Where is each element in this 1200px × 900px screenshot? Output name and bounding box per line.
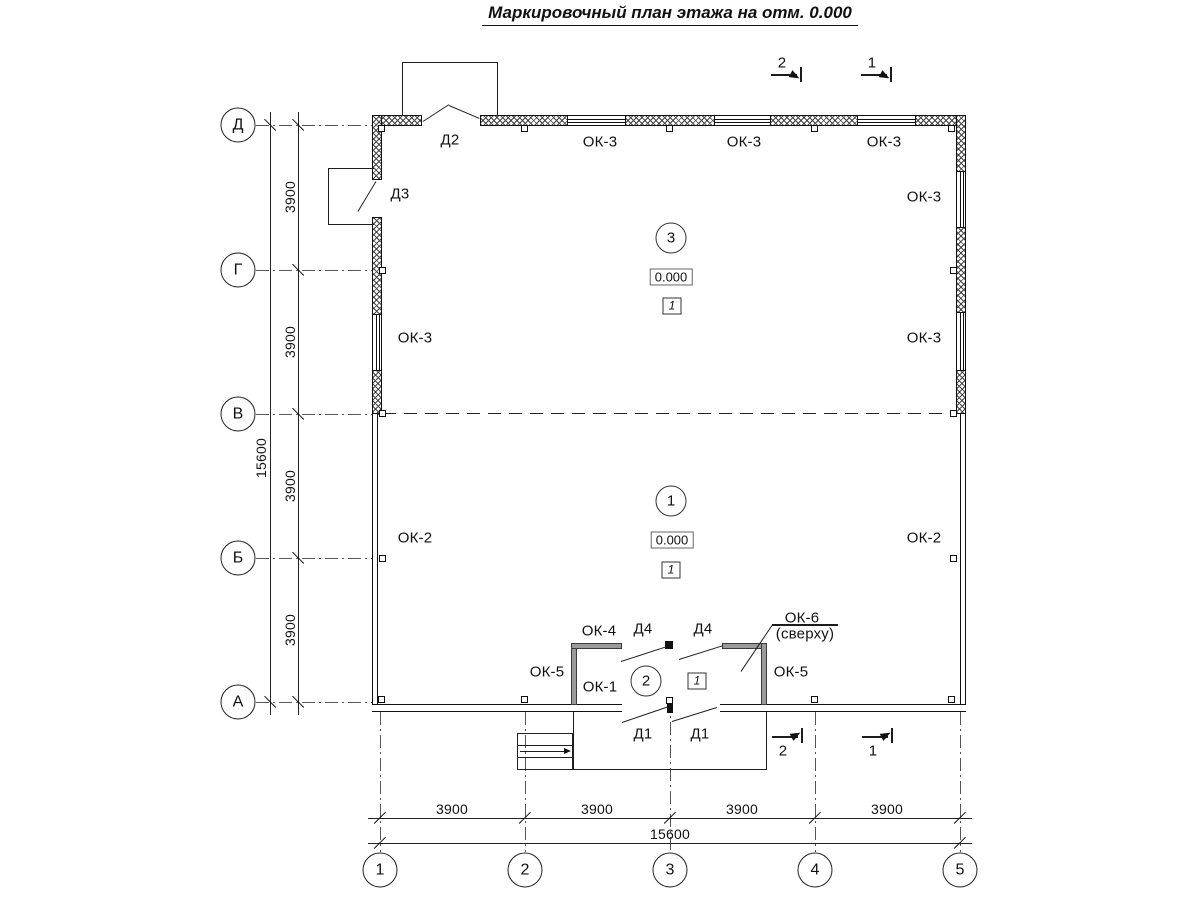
column-marker — [948, 125, 955, 132]
dim-segment: 3900 — [581, 801, 613, 817]
door-swing-d4 — [679, 645, 723, 660]
axis-line-A — [256, 702, 372, 703]
section-mark-label: 1 — [868, 55, 877, 72]
dim-line-left-total — [270, 112, 271, 715]
window-label: ОК-3 — [907, 330, 942, 347]
section-mark-bar — [891, 728, 893, 743]
lobby-outline — [328, 224, 374, 225]
window-ok3 — [956, 313, 966, 370]
window-label: ОК-5 — [530, 664, 565, 681]
column-marker — [378, 696, 385, 703]
window-label: ОК-5 — [774, 664, 809, 681]
column-marker — [666, 125, 673, 132]
window-label: ОК-3 — [867, 134, 902, 151]
window-label-ok6-note: (сверху) — [776, 626, 834, 643]
column-marker — [378, 125, 385, 132]
drawing-title: Маркировочный план этажа на отм. 0.000 — [482, 3, 858, 26]
section-mark-bar — [890, 67, 892, 82]
door-post — [667, 704, 673, 713]
porch-outline — [402, 62, 403, 116]
wall-segment — [956, 370, 966, 414]
porch-outline — [766, 712, 767, 770]
stair-tread — [517, 745, 573, 746]
section-mark-bar — [801, 728, 803, 743]
window-ok3 — [372, 315, 382, 370]
axis-line-G — [256, 270, 372, 271]
porch-outline — [402, 62, 498, 63]
dim-segment: 3900 — [726, 801, 758, 817]
elevation-mark: 0.000 — [650, 269, 693, 286]
column-marker — [950, 267, 957, 274]
wall-segment — [372, 217, 382, 315]
room-number-circle: 1 — [656, 486, 687, 517]
dim-segment: 3900 — [436, 801, 468, 817]
elevation-mark: 0.000 — [651, 532, 694, 549]
column-marker — [948, 696, 955, 703]
window-ok3 — [858, 115, 915, 126]
door-label: Д1 — [634, 726, 653, 743]
finish-ref-mark: 1 — [688, 673, 707, 690]
column-marker — [811, 696, 818, 703]
glazed-partition-left — [571, 643, 577, 705]
axis-row-D: Д — [221, 108, 256, 143]
window-label: ОК-3 — [398, 330, 433, 347]
window-ok3 — [715, 115, 770, 126]
window-label: ОК-4 — [582, 623, 617, 640]
axis-V-dashed-partition-line — [383, 413, 956, 414]
axis-col-2: 2 — [508, 853, 543, 888]
column-marker — [379, 555, 386, 562]
wall-segment — [956, 227, 966, 313]
dim-segment: 3900 — [282, 326, 298, 358]
window-label: ОК-2 — [398, 530, 433, 547]
axis-col-4: 4 — [798, 853, 833, 888]
door-swing-d2 — [423, 104, 450, 122]
window-wall-ok2 — [372, 414, 378, 712]
dim-total-bottom: 15600 — [650, 826, 690, 842]
wall-segment — [956, 115, 966, 172]
axis-line-1 — [380, 712, 381, 852]
dim-segment: 3900 — [282, 470, 298, 502]
stair-direction-arrow-icon — [564, 748, 571, 754]
section-mark-label: 2 — [778, 55, 787, 72]
window-label: ОК-3 — [727, 134, 762, 151]
finish-ref-mark: 1 — [663, 298, 682, 315]
door-swing-d2 — [449, 105, 480, 119]
section-mark-label: 1 — [869, 743, 878, 760]
dim-segment: 3900 — [871, 801, 903, 817]
column-marker — [521, 696, 528, 703]
axis-col-3: 3 — [653, 853, 688, 888]
window-ok3 — [956, 172, 966, 227]
axis-row-V: В — [221, 397, 256, 432]
window-label: ОК-3 — [583, 134, 618, 151]
window-label: ОК-2 — [907, 530, 942, 547]
door-swing-d3 — [357, 181, 376, 212]
axis-col-5: 5 — [943, 853, 978, 888]
dim-total-left: 15600 — [253, 438, 269, 478]
section-mark-label: 2 — [779, 743, 788, 760]
leader-shelf — [772, 624, 838, 625]
wall-segment — [720, 704, 966, 712]
room-number-circle: 3 — [656, 223, 687, 254]
glazed-partition-ok4 — [571, 643, 622, 649]
column-marker — [521, 125, 528, 132]
finish-ref-mark: 1 — [662, 562, 681, 579]
floor-plan-drawing: Маркировочный план этажа на отм. 0.000 Д… — [0, 0, 1200, 900]
room-number-circle: 2 — [631, 666, 662, 697]
dim-segment: 3900 — [282, 181, 298, 213]
window-ok3 — [568, 115, 625, 126]
column-marker — [811, 125, 818, 132]
door-label: Д3 — [391, 186, 410, 203]
door-swing-d1 — [672, 707, 717, 722]
stair-tread — [517, 757, 573, 758]
wall-segment — [372, 370, 382, 414]
door-label: Д2 — [441, 132, 460, 149]
door-swing-d1 — [622, 706, 670, 723]
glazed-partition-right — [761, 643, 767, 705]
door-swing-d4 — [621, 646, 667, 662]
axis-line-5 — [960, 712, 961, 852]
lobby-outline — [328, 168, 329, 225]
window-label: ОК-1 — [583, 679, 618, 696]
column-marker — [950, 555, 957, 562]
column-marker — [379, 410, 386, 417]
axis-row-A: А — [221, 685, 256, 720]
axis-line-D — [256, 125, 372, 126]
lobby-outline — [328, 168, 374, 169]
window-wall-ok2 — [960, 414, 966, 712]
door-label: Д4 — [694, 621, 713, 638]
dim-segment: 3900 — [282, 614, 298, 646]
wall-segment — [372, 704, 622, 712]
porch-outline — [573, 769, 767, 770]
axis-row-B: Б — [221, 541, 256, 576]
window-label: ОК-3 — [907, 189, 942, 206]
porch-outline — [497, 62, 498, 116]
column-marker — [950, 410, 957, 417]
door-label: Д4 — [634, 621, 653, 638]
axis-row-G: Г — [221, 253, 256, 288]
column-marker — [666, 697, 673, 704]
dim-line-bottom-total — [368, 843, 972, 844]
door-label: Д1 — [691, 726, 710, 743]
axis-line-V — [256, 414, 383, 415]
stair-direction-line — [520, 751, 564, 752]
axis-line-4 — [815, 712, 816, 852]
section-mark-bar — [800, 67, 802, 82]
column-marker — [379, 267, 386, 274]
axis-line-B — [256, 558, 372, 559]
axis-col-1: 1 — [363, 853, 398, 888]
porch-outline — [573, 712, 574, 770]
